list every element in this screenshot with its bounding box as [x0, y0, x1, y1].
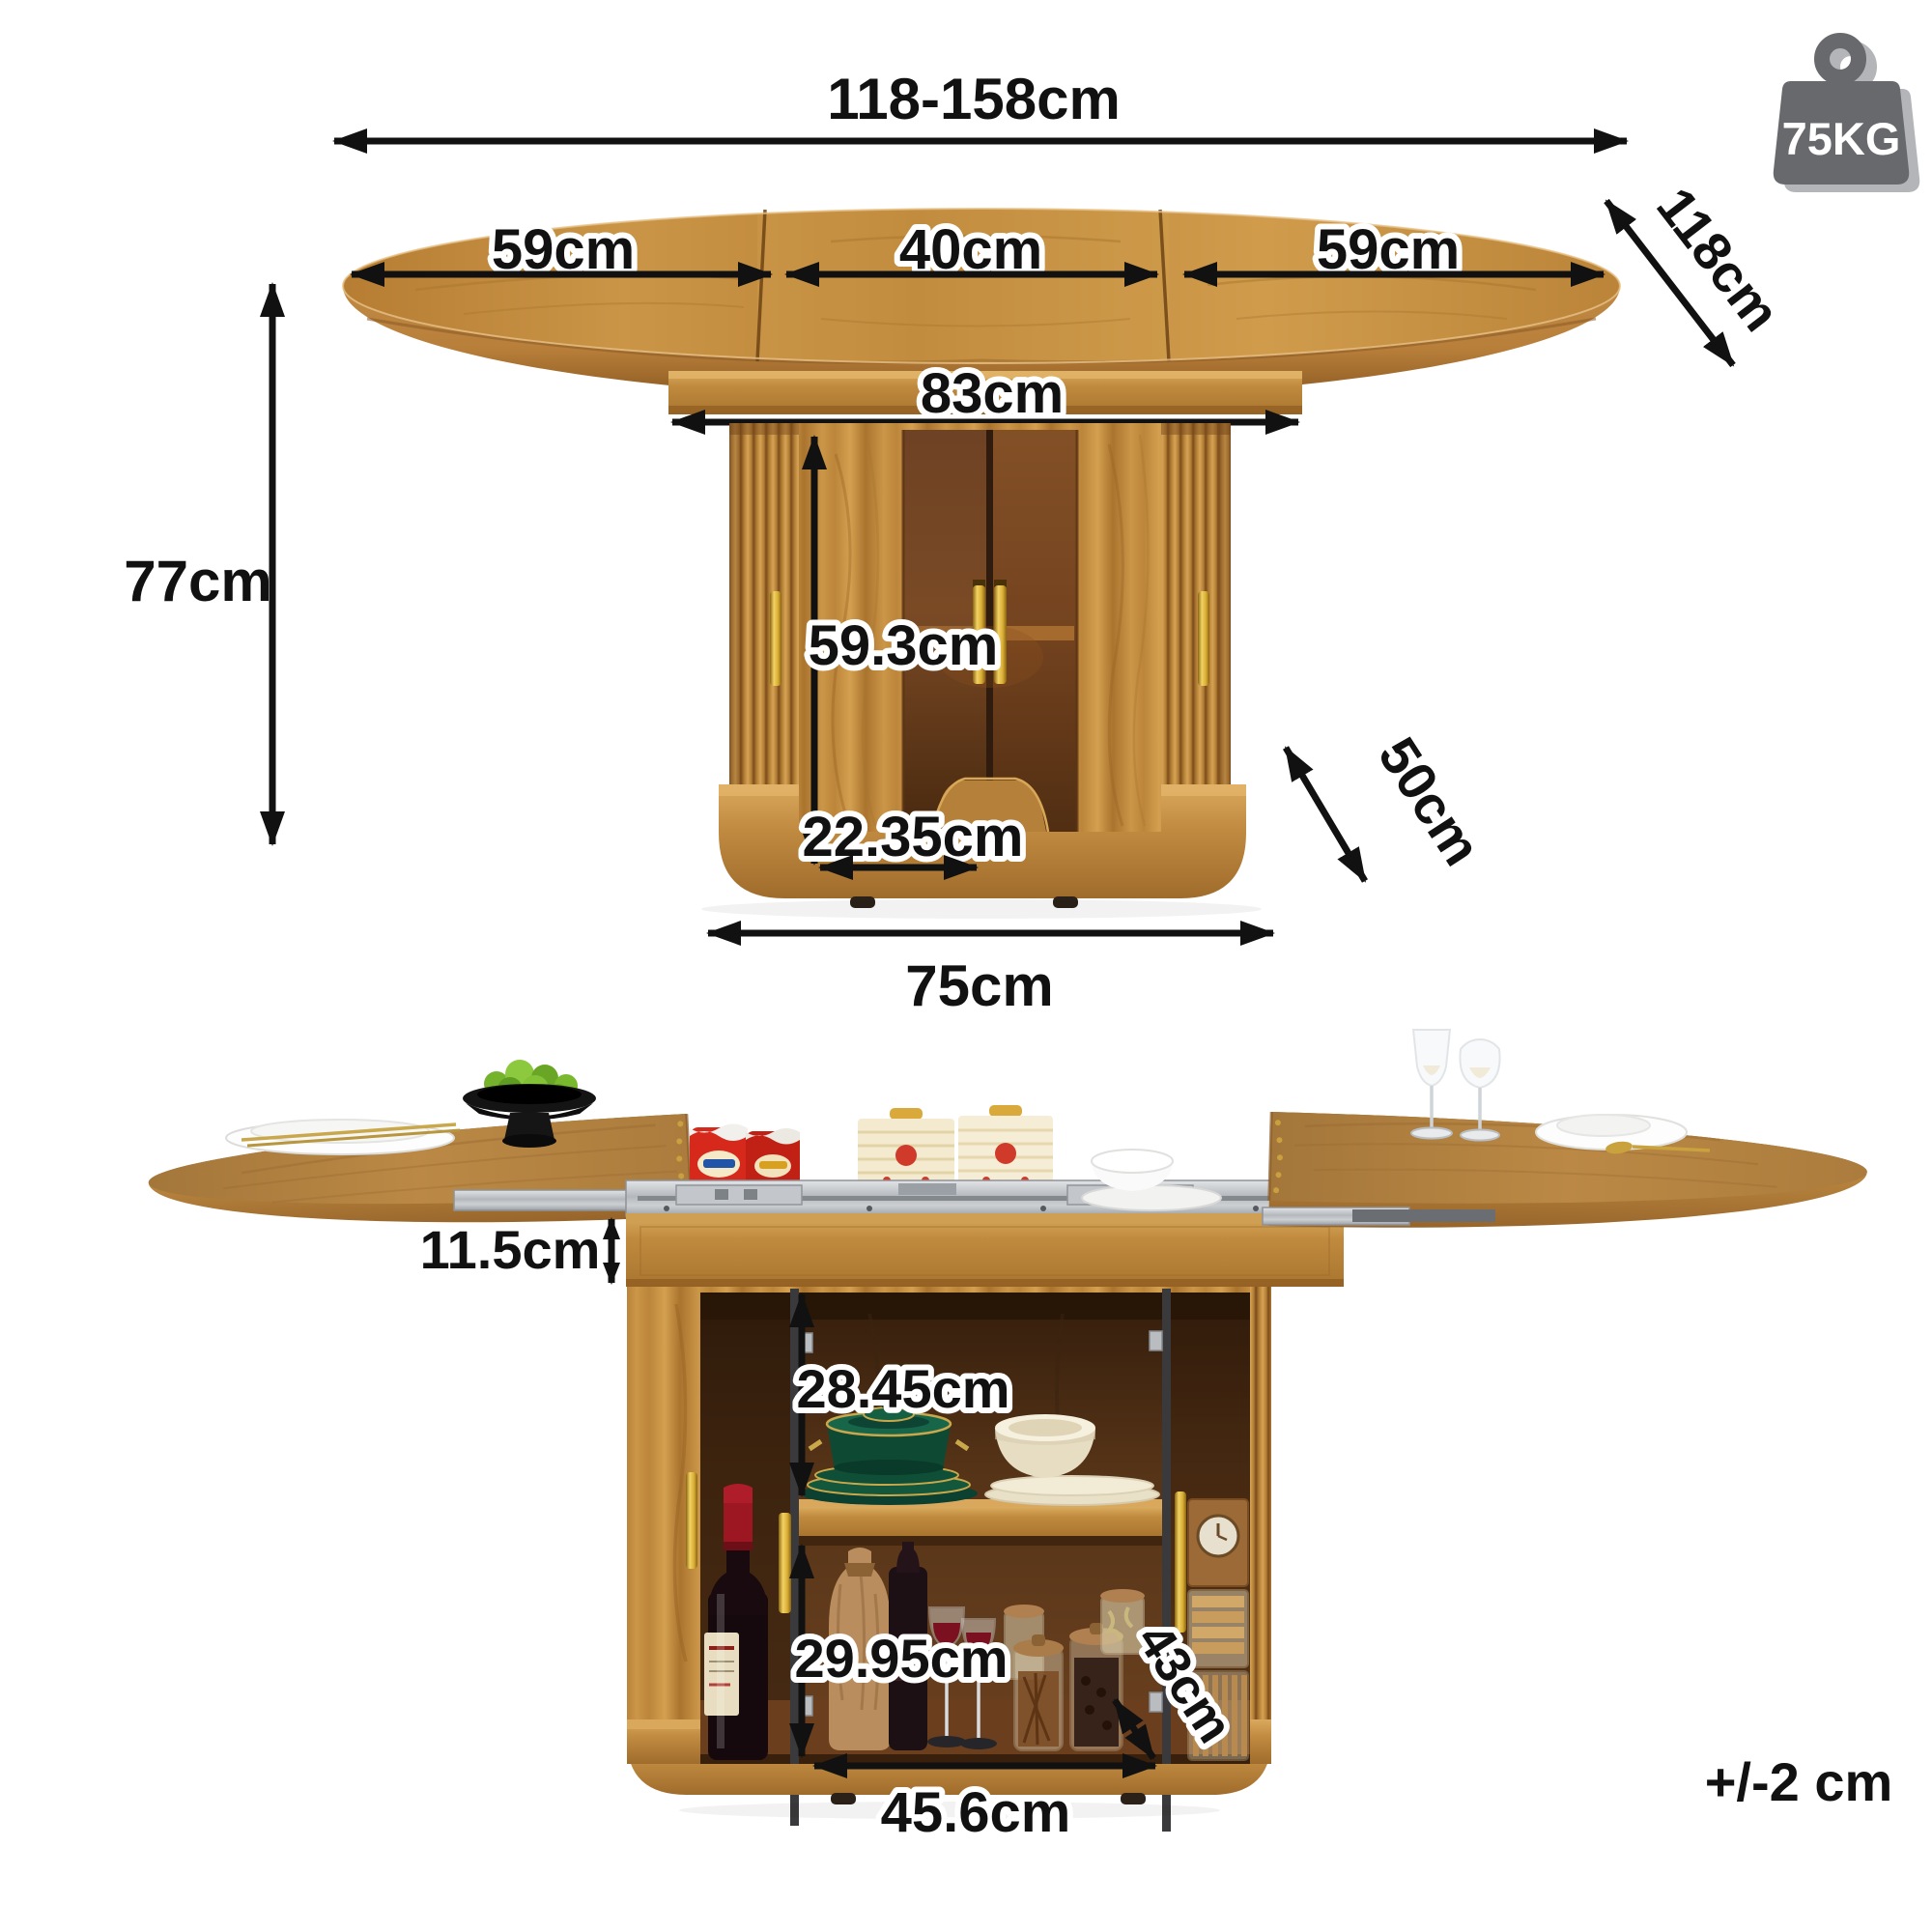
svg-text:83cm: 83cm — [921, 362, 1064, 425]
svg-text:118-158cm: 118-158cm — [827, 67, 1121, 131]
svg-text:28.45cm: 28.45cm — [796, 1358, 1009, 1419]
svg-text:22.35cm: 22.35cm — [803, 806, 1024, 868]
svg-text:75cm: 75cm — [905, 953, 1053, 1018]
svg-text:45.6cm: 45.6cm — [881, 1781, 1071, 1844]
svg-text:77cm: 77cm — [124, 549, 271, 613]
svg-text:29.95cm: 29.95cm — [794, 1628, 1008, 1689]
svg-text:59.3cm: 59.3cm — [809, 614, 999, 677]
svg-text:+/-2 cm: +/-2 cm — [1705, 1751, 1893, 1812]
svg-text:75KG: 75KG — [1782, 113, 1901, 164]
svg-text:11.5cm: 11.5cm — [420, 1219, 601, 1280]
